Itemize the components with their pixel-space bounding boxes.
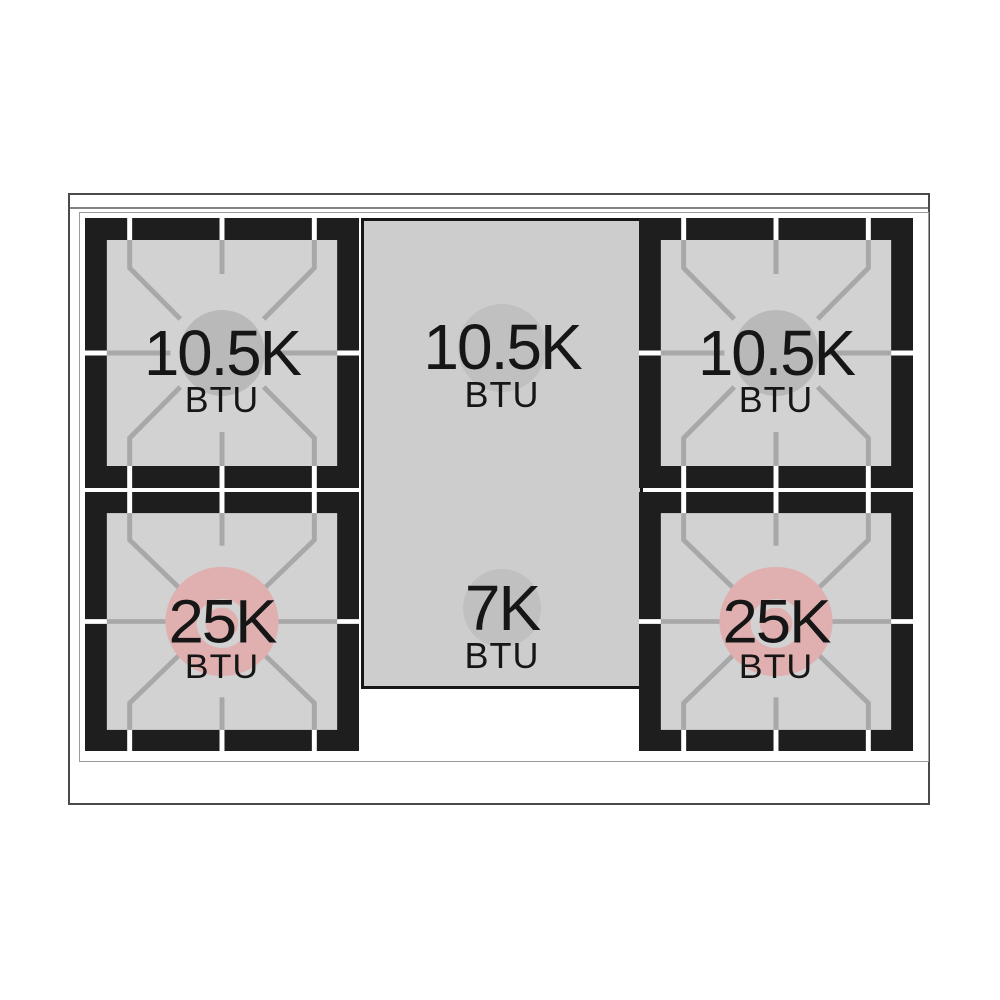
burner-btu-value: 10.5K [423,311,582,383]
center-burner-column: 10.5K BTU 7K BTU [361,218,637,751]
burner-bottom-left: 25K BTU [85,492,359,751]
burner-btu-value: 7K [465,572,541,644]
burner-top-right: 10.5K BTU [639,218,913,488]
center-front-gap [361,693,637,751]
burner-btu-unit: BTU [739,380,813,420]
cooktop-columns: 10.5K BTU [85,218,913,751]
cooktop-surface: 10.5K BTU [79,212,929,762]
left-burner-column: 10.5K BTU [85,218,359,751]
center-griddle-zone: 10.5K BTU 7K BTU [361,218,643,689]
range-top-view: 10.5K BTU [68,193,930,805]
burner-top-left: 10.5K BTU [85,218,359,488]
burner-btu-unit: BTU [185,648,259,686]
burner-btu-value: 10.5K [144,317,302,389]
burner-btu-value: 10.5K [698,317,856,389]
burner-btu-unit: BTU [465,635,540,676]
burner-btu-unit: BTU [465,374,540,415]
burner-bottom-right: 25K BTU [639,492,913,751]
burner-btu-value: 25K [168,588,276,657]
burner-btu-unit: BTU [739,648,813,686]
burner-btu-unit: BTU [185,380,259,420]
center-burners: 10.5K BTU 7K BTU [364,221,640,686]
burner-btu-value: 25K [722,588,830,657]
right-burner-column: 10.5K BTU [639,218,913,751]
back-ledge-line [70,207,928,209]
